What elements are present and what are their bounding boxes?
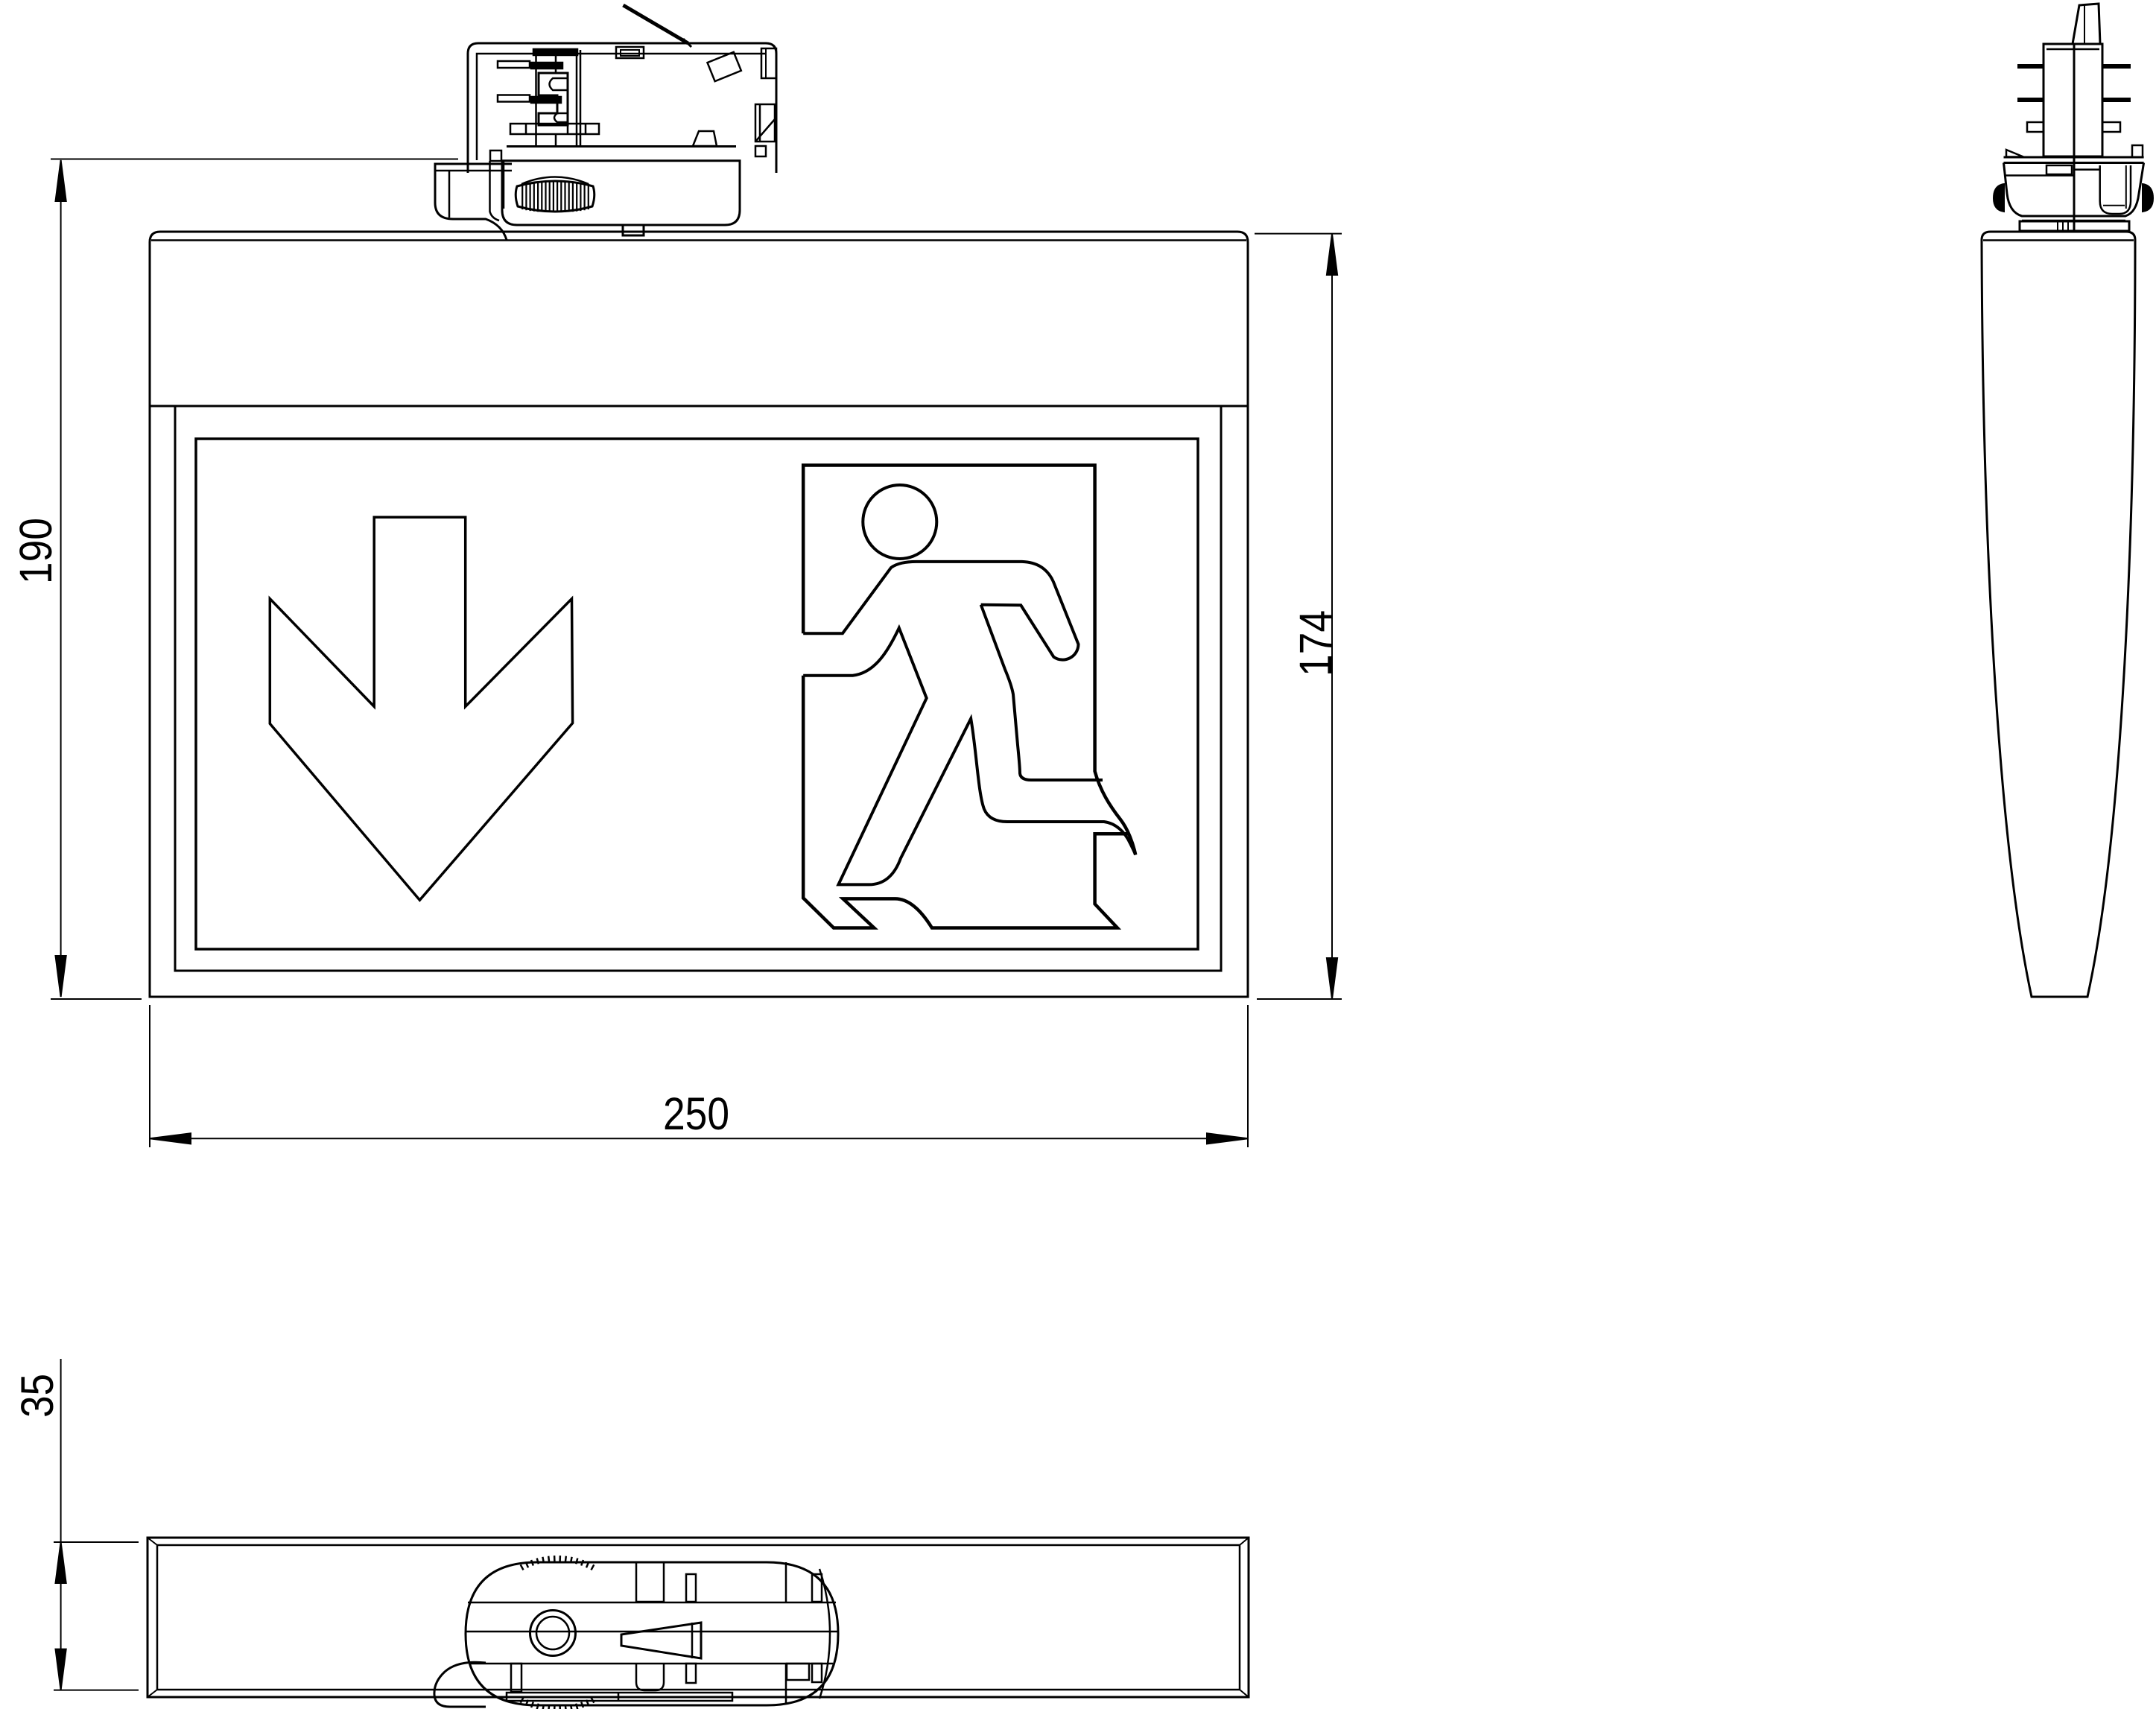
svg-text:174: 174 — [1290, 610, 1341, 676]
svg-text:190: 190 — [10, 518, 61, 584]
svg-text:35: 35 — [12, 1374, 63, 1418]
svg-text:250: 250 — [663, 1088, 729, 1139]
